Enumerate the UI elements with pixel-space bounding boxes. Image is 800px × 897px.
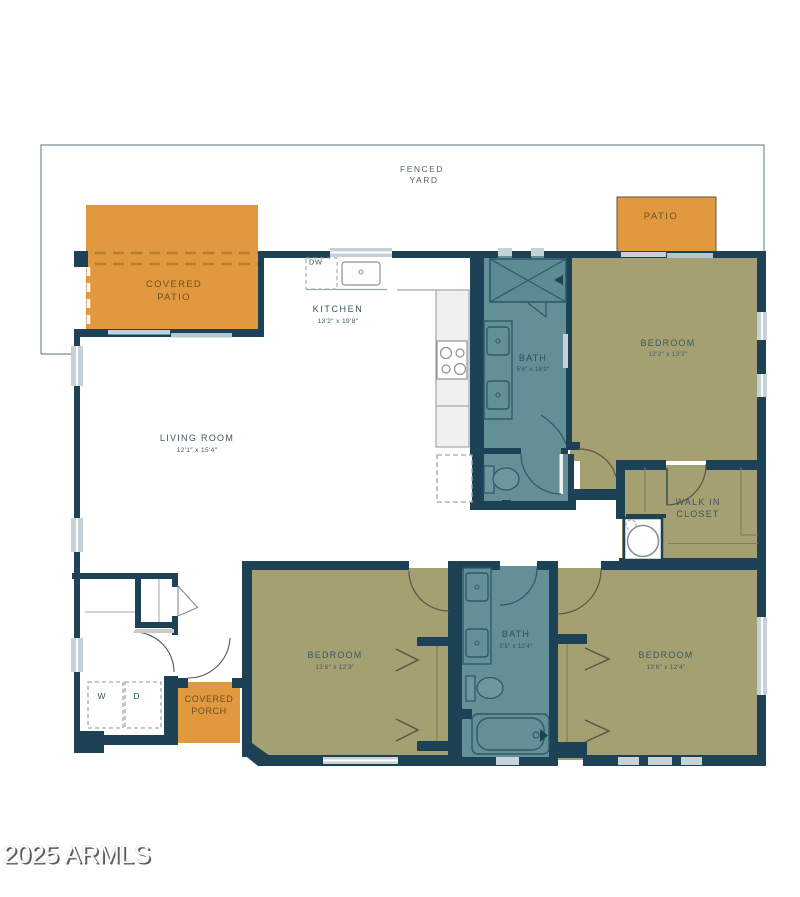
svg-text:KITCHEN: KITCHEN: [313, 304, 364, 314]
svg-text:D: D: [133, 691, 139, 701]
svg-text:PATIO: PATIO: [157, 292, 191, 303]
svg-text:PATIO: PATIO: [644, 211, 679, 222]
svg-text:LIVING ROOM: LIVING ROOM: [160, 433, 234, 443]
svg-text:5′6″ x 16′0″: 5′6″ x 16′0″: [516, 367, 550, 373]
svg-text:W: W: [97, 691, 105, 701]
svg-text:12′2″ x 13′2″: 12′2″ x 13′2″: [648, 351, 687, 358]
svg-text:2025 ARMLS: 2025 ARMLS: [3, 841, 150, 869]
svg-text:12′1″ x 15′4″: 12′1″ x 15′4″: [177, 447, 218, 454]
svg-text:COVERED: COVERED: [146, 279, 202, 290]
svg-text:CLOSET: CLOSET: [676, 509, 719, 519]
svg-text:YARD: YARD: [410, 175, 439, 185]
svg-text:5′5″ x 12′4″: 5′5″ x 12′4″: [499, 644, 533, 650]
svg-text:BATH: BATH: [519, 353, 547, 363]
svg-text:PORCH: PORCH: [191, 706, 227, 716]
svg-text:13′6″ x 12′4″: 13′6″ x 12′4″: [646, 664, 685, 671]
svg-text:BEDROOM: BEDROOM: [641, 338, 696, 348]
svg-text:BATH: BATH: [502, 629, 530, 639]
svg-text:DW: DW: [309, 258, 323, 267]
svg-text:BEDROOM: BEDROOM: [308, 650, 363, 660]
svg-text:BEDROOM: BEDROOM: [639, 650, 694, 660]
svg-text:13′2″ x 19′8″: 13′2″ x 19′8″: [318, 318, 359, 325]
svg-text:FENCED: FENCED: [400, 164, 444, 174]
svg-text:COVERED: COVERED: [185, 694, 234, 704]
svg-text:13′6″ x 12′3″: 13′6″ x 12′3″: [315, 664, 354, 671]
